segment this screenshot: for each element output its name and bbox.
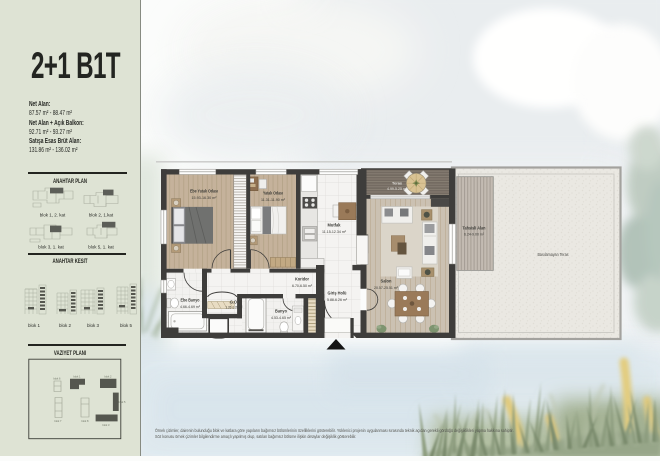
svg-text:Ebe Yatak Odası: Ebe Yatak Odası	[190, 189, 218, 194]
svg-text:Basılamayan Teras: Basılamayan Teras	[538, 252, 569, 257]
svg-text:15.93-16.30 m²: 15.93-16.30 m²	[192, 195, 218, 200]
svg-text:4.53-4.65 m²: 4.53-4.65 m²	[271, 315, 292, 320]
svg-text:Mutfak: Mutfak	[328, 223, 342, 228]
svg-text:6.24-9.00 m²: 6.24-9.00 m²	[464, 232, 485, 237]
svg-text:blok 8: blok 8	[82, 419, 89, 423]
svg-text:Teras: Teras	[392, 181, 403, 186]
svg-text:20.57-25.51 m²: 20.57-25.51 m²	[374, 285, 399, 290]
svg-text:G.O: G.O	[230, 300, 238, 305]
svg-text:blok 3: blok 3	[103, 423, 110, 427]
svg-text:5.88-6.26 m²: 5.88-6.26 m²	[327, 297, 348, 302]
svg-text:11.15-12.34 m²: 11.15-12.34 m²	[322, 229, 347, 234]
svg-text:blok 1: blok 1	[74, 375, 81, 379]
svg-text:Ebe Banyo: Ebe Banyo	[181, 298, 200, 303]
svg-text:blok 2: blok 2	[105, 375, 112, 379]
svg-text:blok 6: blok 6	[54, 377, 61, 381]
svg-text:Giriş Holü: Giriş Holü	[328, 291, 347, 296]
svg-text:1.26-1.28 m²: 1.26-1.28 m²	[226, 306, 244, 310]
svg-text:Tahsisli Alan: Tahsisli Alan	[463, 226, 486, 231]
svg-text:4.66-4.69 m²: 4.66-4.69 m²	[180, 304, 201, 309]
svg-text:Banyo: Banyo	[275, 309, 287, 314]
svg-text:6.70-6.50 m²: 6.70-6.50 m²	[292, 283, 313, 288]
svg-text:11.31-11.90 m²: 11.31-11.90 m²	[261, 197, 286, 202]
svg-text:blok 7: blok 7	[55, 419, 62, 423]
svg-text:Koridor: Koridor	[295, 277, 309, 282]
svg-text:blok 5: blok 5	[119, 400, 126, 404]
svg-text:Salon: Salon	[381, 279, 392, 284]
svg-text:4.99-5.25 m²: 4.99-5.25 m²	[387, 187, 408, 191]
svg-text:Yatak Odası: Yatak Odası	[263, 191, 283, 196]
